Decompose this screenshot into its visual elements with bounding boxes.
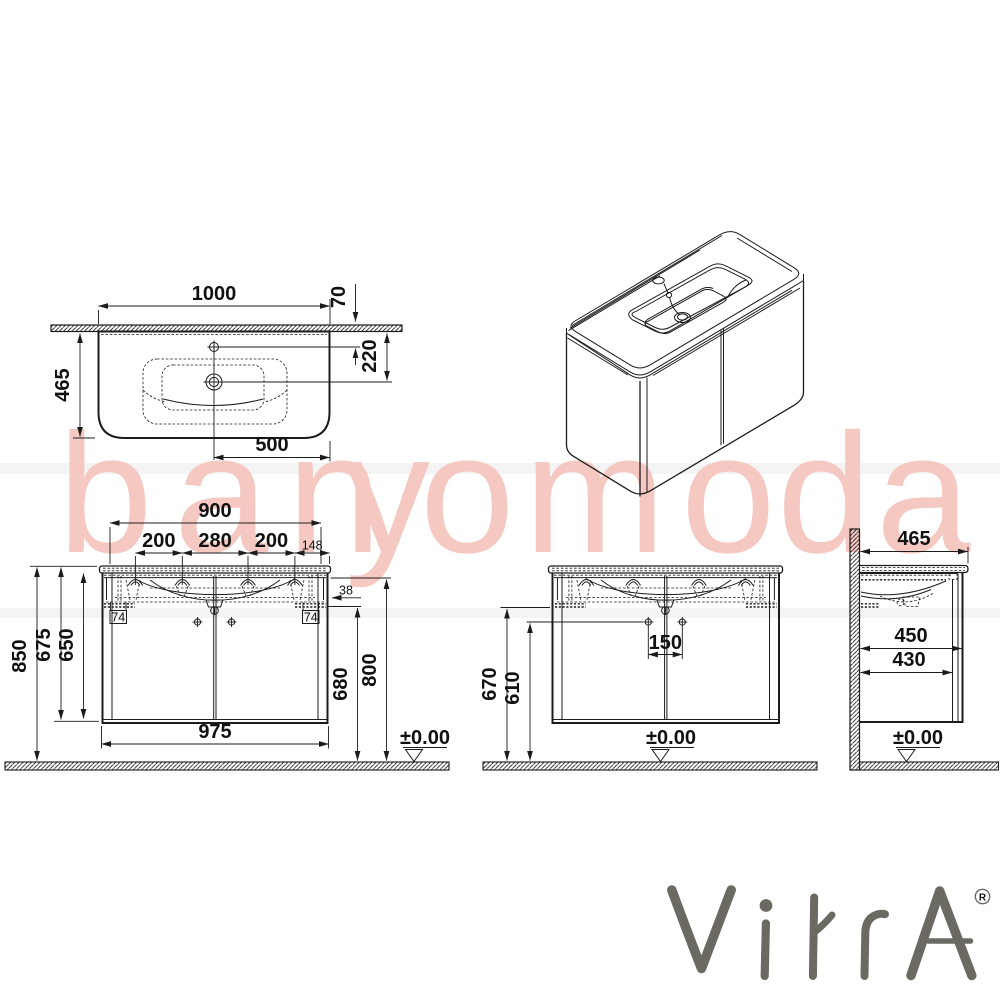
svg-text:±0.00: ±0.00 xyxy=(646,727,696,749)
svg-text:430: 430 xyxy=(892,649,925,671)
svg-text:220: 220 xyxy=(359,339,381,372)
svg-text:74: 74 xyxy=(111,611,125,625)
svg-text:500: 500 xyxy=(255,434,288,456)
svg-text:280: 280 xyxy=(198,530,231,552)
svg-text:650: 650 xyxy=(56,628,78,661)
svg-text:38: 38 xyxy=(339,584,353,598)
svg-text:680: 680 xyxy=(330,667,352,700)
svg-text:200: 200 xyxy=(255,530,288,552)
svg-text:610: 610 xyxy=(502,671,524,704)
svg-text:1000: 1000 xyxy=(192,283,237,305)
svg-text:900: 900 xyxy=(198,500,231,522)
svg-text:200: 200 xyxy=(142,530,175,552)
svg-text:465: 465 xyxy=(897,528,930,550)
svg-text:450: 450 xyxy=(894,625,927,647)
svg-text:670: 670 xyxy=(479,667,501,700)
svg-text:banyomoda: banyomoda xyxy=(58,399,971,589)
svg-text:675: 675 xyxy=(33,628,55,661)
svg-text:R: R xyxy=(979,893,987,904)
svg-text:850: 850 xyxy=(9,639,31,672)
svg-text:74: 74 xyxy=(304,611,318,625)
svg-text:±0.00: ±0.00 xyxy=(400,727,450,749)
svg-text:148: 148 xyxy=(302,539,323,553)
svg-text:465: 465 xyxy=(52,368,74,401)
svg-text:150: 150 xyxy=(649,632,682,654)
svg-text:975: 975 xyxy=(198,721,231,743)
svg-text:70: 70 xyxy=(328,286,350,308)
svg-text:±0.00: ±0.00 xyxy=(893,727,943,749)
svg-text:800: 800 xyxy=(359,653,381,686)
